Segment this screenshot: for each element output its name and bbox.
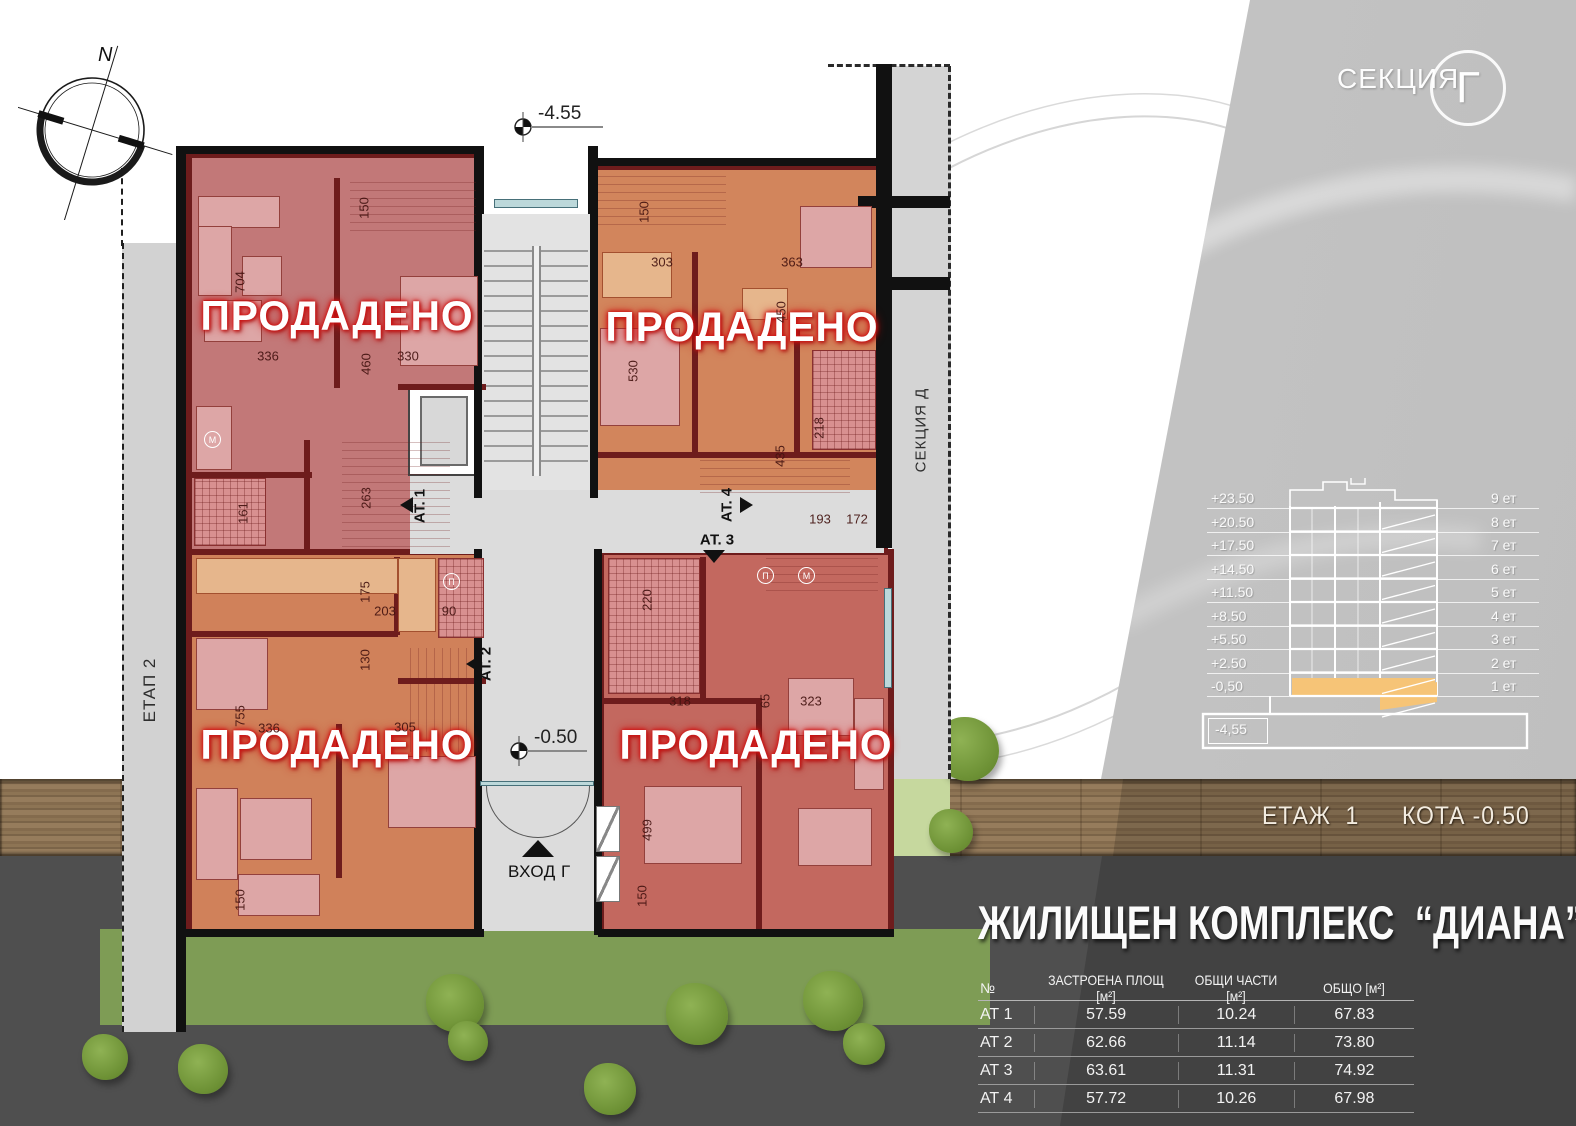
row-built-up: 57.72 xyxy=(1035,1090,1178,1108)
col-common: ОБЩИ ЧАСТИ [м²] xyxy=(1185,972,1287,1004)
top-level-value: -4.55 xyxy=(538,103,581,125)
entrance-level-value: -0.50 xyxy=(534,727,577,749)
dimension-label: 530 xyxy=(626,360,641,382)
furniture xyxy=(598,176,726,230)
tree-icon xyxy=(803,971,863,1031)
window-icon xyxy=(494,199,578,208)
dimension-label: 263 xyxy=(359,487,374,509)
level-line xyxy=(1207,508,1539,509)
arrow-right-icon xyxy=(740,497,753,513)
north-label: N xyxy=(98,44,112,67)
level-elevation: +20.50 xyxy=(1211,514,1254,530)
row-built-up: 57.59 xyxy=(1035,1006,1178,1024)
level-floor: 9 ет xyxy=(1491,490,1516,506)
entrance-arrow-icon xyxy=(522,840,554,857)
arrow-left-icon xyxy=(466,656,479,672)
section-d-label: СЕКЦИЯ Д xyxy=(913,388,930,473)
base-elevation-label: -4,55 xyxy=(1215,721,1247,737)
dimension-label: 330 xyxy=(397,349,419,364)
level-floor: 5 ет xyxy=(1491,584,1516,600)
dimension-label: 90 xyxy=(442,604,456,619)
dimension-label: 220 xyxy=(640,589,655,611)
furniture xyxy=(398,558,436,632)
level-elevation: +2.50 xyxy=(1211,655,1246,671)
interior-wall xyxy=(192,631,398,637)
dimension-label: 193 xyxy=(809,512,831,527)
section-badge-letter: Г xyxy=(1433,53,1503,123)
level-line xyxy=(1207,673,1539,674)
structural-wall xyxy=(892,277,950,290)
area-table: № ЗАСТРОЕНА ПЛОЩ [м²] ОБЩИ ЧАСТИ [м²] ОБ… xyxy=(978,976,1414,1113)
tree-icon xyxy=(843,1023,885,1065)
appliance-icon: П xyxy=(443,573,460,590)
interior-wall xyxy=(334,178,340,388)
sold-overlay: ПРОДАДЕНО xyxy=(200,721,473,769)
dimension-label: 435 xyxy=(773,445,788,467)
level-line xyxy=(1207,696,1539,697)
dimension-label: 318 xyxy=(669,694,691,709)
furniture xyxy=(194,478,266,546)
tree-icon xyxy=(666,983,728,1045)
level-line xyxy=(1207,649,1539,650)
row-common: 11.31 xyxy=(1179,1062,1294,1080)
dimension-label: 172 xyxy=(846,512,868,527)
level-elevation: +17.50 xyxy=(1211,537,1254,553)
appliance-icon: М xyxy=(798,567,815,584)
interior-wall xyxy=(304,440,310,554)
level-floor: 1 ет xyxy=(1491,678,1516,694)
row-common: 10.26 xyxy=(1179,1090,1294,1108)
level-floor: 7 ет xyxy=(1491,537,1516,553)
appliance-icon: П xyxy=(757,567,774,584)
interior-wall xyxy=(598,452,886,458)
structural-wall xyxy=(590,206,598,498)
level-elevation: -0,50 xyxy=(1211,678,1243,694)
level-floor: 2 ет xyxy=(1491,655,1516,671)
dimension-label: 303 xyxy=(651,255,673,270)
row-total: 74.92 xyxy=(1295,1062,1414,1080)
entrance-label: ВХОД Г xyxy=(508,862,571,882)
dimension-label: 161 xyxy=(236,502,251,524)
tree-icon xyxy=(178,1044,228,1094)
level-line xyxy=(1207,532,1539,533)
furniture xyxy=(242,256,282,296)
structural-wall xyxy=(176,146,186,1032)
row-id: АТ 4 xyxy=(978,1090,1034,1108)
furniture xyxy=(198,226,232,296)
interior-wall xyxy=(700,557,706,703)
level-elevation: +14.50 xyxy=(1211,561,1254,577)
dimension-label: 323 xyxy=(800,694,822,709)
interior-wall xyxy=(692,252,698,458)
furniture xyxy=(238,874,320,916)
furniture xyxy=(608,558,700,694)
stair-stringer xyxy=(532,246,541,476)
row-total: 67.98 xyxy=(1295,1090,1414,1108)
structural-wall xyxy=(592,158,888,166)
level-floor: 8 ет xyxy=(1491,514,1516,530)
stage2-strip xyxy=(122,243,182,1032)
furniture xyxy=(800,206,872,268)
stage2-label: ЕТАП 2 xyxy=(140,658,160,723)
level-floor: 6 ет xyxy=(1491,561,1516,577)
furniture xyxy=(798,808,872,866)
level-floor: 4 ет xyxy=(1491,608,1516,624)
tree-icon xyxy=(584,1063,636,1115)
table-row: АТ 262.6611.1473.80 xyxy=(978,1029,1414,1057)
tree-icon xyxy=(929,809,973,853)
floor-plan-sheet: ЕТАП 2 СЕКЦИЯ Д МППМ АТ. 1 АТ. 2 АТ. 3 А… xyxy=(0,0,1576,1126)
dimension-label: 755 xyxy=(233,705,248,727)
floor-banner-floor: ЕТАЖ 1 xyxy=(1262,802,1359,831)
row-common: 11.14 xyxy=(1179,1034,1294,1052)
structural-wall xyxy=(186,929,484,937)
dimension-label: 150 xyxy=(635,885,650,907)
dimension-label: 450 xyxy=(774,301,789,323)
row-id: АТ 3 xyxy=(978,1062,1034,1080)
sold-overlay: ПРОДАДЕНО xyxy=(200,292,473,340)
dimension-label: 150 xyxy=(357,197,372,219)
dimension-label: 150 xyxy=(233,889,248,911)
level-line xyxy=(1207,555,1539,556)
row-total: 67.83 xyxy=(1295,1006,1414,1024)
window-icon xyxy=(884,588,892,688)
level-line xyxy=(1207,602,1539,603)
table-row: АТ 363.6111.3174.92 xyxy=(978,1057,1414,1085)
apartment-tag-at2: АТ. 2 xyxy=(478,647,495,681)
level-elevation: +5.50 xyxy=(1211,631,1246,647)
apartment-tag-at1: АТ. 1 xyxy=(412,489,429,523)
interior-wall xyxy=(398,384,486,390)
dimension-label: 460 xyxy=(359,353,374,375)
dimension-label: 203 xyxy=(374,604,396,619)
structural-wall xyxy=(186,146,484,154)
furniture xyxy=(438,558,484,638)
row-built-up: 62.66 xyxy=(1035,1034,1178,1052)
furniture xyxy=(644,786,742,864)
level-elevation: +8.50 xyxy=(1211,608,1246,624)
row-total: 73.80 xyxy=(1295,1034,1414,1052)
dimension-label: 130 xyxy=(358,649,373,671)
floor-banner-elevation: КОТА -0.50 xyxy=(1402,802,1530,831)
furniture xyxy=(196,638,268,710)
dimension-label: 150 xyxy=(637,201,652,223)
electrical-box-icon xyxy=(596,806,620,852)
level-line xyxy=(1207,579,1539,580)
dimension-label: 363 xyxy=(781,255,803,270)
furniture xyxy=(198,196,280,228)
marker-line xyxy=(531,126,603,128)
furniture xyxy=(766,558,878,592)
sold-overlay: ПРОДАДЕНО xyxy=(619,721,892,769)
marker-line xyxy=(527,750,587,752)
col-number: № xyxy=(978,980,1034,996)
dimension-label: 704 xyxy=(233,271,248,293)
structural-wall xyxy=(598,929,894,937)
row-id: АТ 2 xyxy=(978,1034,1034,1052)
level-elevation: +23.50 xyxy=(1211,490,1254,506)
dimension-label: 336 xyxy=(257,349,279,364)
apartment-tag-at3: АТ. 3 xyxy=(700,532,734,549)
furniture xyxy=(196,788,238,880)
tree-icon xyxy=(82,1034,128,1080)
structural-wall xyxy=(588,146,598,214)
table-row: АТ 157.5910.2467.83 xyxy=(978,1001,1414,1029)
dimension-label: 499 xyxy=(640,819,655,841)
col-built-up: ЗАСТРОЕНА ПЛОЩ [м²] xyxy=(1043,972,1170,1004)
row-id: АТ 1 xyxy=(978,1006,1034,1024)
furniture xyxy=(240,798,312,860)
level-elevation: +11.50 xyxy=(1211,584,1253,600)
electrical-box-icon xyxy=(596,856,620,902)
level-line xyxy=(1207,626,1539,627)
north-compass-icon xyxy=(18,40,178,220)
level-floor: 3 ет xyxy=(1491,631,1516,647)
dimension-label: 305 xyxy=(394,720,416,735)
project-title: ЖИЛИЩЕН КОМПЛЕКС “ДИАНА” xyxy=(978,895,1576,950)
col-total: ОБЩО [м²] xyxy=(1301,980,1407,996)
dimension-label: 65 xyxy=(758,694,773,708)
area-table-header: № ЗАСТРОЕНА ПЛОЩ [м²] ОБЩИ ЧАСТИ [м²] ОБ… xyxy=(978,976,1414,1001)
dimension-label: 218 xyxy=(812,417,827,439)
building-section-diagram: +23.509 ет+20.508 ет+17.507 ет+14.506 ет… xyxy=(1195,478,1567,770)
sold-overlay: ПРОДАДЕНО xyxy=(605,303,878,351)
apartment-tag-at4: АТ. 4 xyxy=(719,488,736,522)
tree-icon xyxy=(448,1021,488,1061)
dimension-label: 175 xyxy=(358,581,373,603)
row-common: 10.24 xyxy=(1179,1006,1294,1024)
table-row: АТ 457.7210.2667.98 xyxy=(978,1085,1414,1113)
section-badge-circle: Г xyxy=(1430,50,1506,126)
arrow-down-icon xyxy=(703,550,725,563)
appliance-icon: М xyxy=(204,431,221,448)
dimension-label: 336 xyxy=(258,721,280,736)
arrow-left-icon xyxy=(400,497,413,513)
row-built-up: 63.61 xyxy=(1035,1062,1178,1080)
